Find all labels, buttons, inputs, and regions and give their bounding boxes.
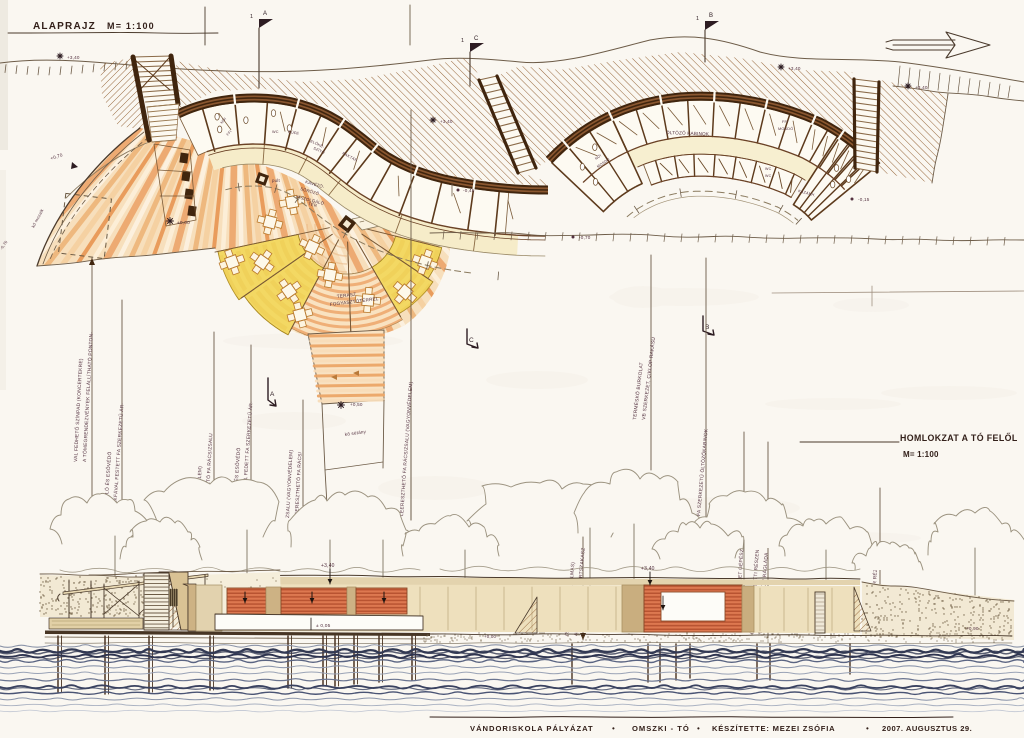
- svg-text:HOMLOKZAT A TÓ FELŐL: HOMLOKZAT A TÓ FELŐL: [900, 432, 1018, 443]
- svg-text:1: 1: [461, 38, 464, 44]
- svg-text:+3,40: +3,40: [321, 563, 335, 569]
- svg-text:VÁNDORISKOLA PÁLYÁZAT: VÁNDORISKOLA PÁLYÁZAT: [470, 724, 594, 733]
- svg-text:2007. AUGUSZTUS 29.: 2007. AUGUSZTUS 29.: [882, 724, 972, 733]
- svg-text:±0,00: ±0,00: [177, 220, 190, 226]
- svg-text:WC: WC: [272, 130, 279, 134]
- svg-text:C: C: [474, 36, 479, 42]
- svg-text:-0,15: -0,15: [858, 197, 870, 202]
- svg-text:A: A: [263, 11, 267, 17]
- svg-text:•: •: [866, 724, 869, 733]
- svg-text:-0,45: -0,45: [463, 188, 475, 193]
- svg-text:± 0,05: ± 0,05: [316, 623, 331, 629]
- svg-text:KÉSZÍTETTE: MEZEI ZSÓFIA: KÉSZÍTETTE: MEZEI ZSÓFIA: [712, 724, 835, 733]
- svg-text:FFI: FFI: [782, 120, 788, 124]
- svg-text:A: A: [270, 391, 275, 398]
- svg-text:•: •: [697, 724, 700, 733]
- svg-text:M= 1:100: M= 1:100: [903, 450, 939, 459]
- svg-text:+3,40: +3,40: [440, 119, 453, 124]
- svg-text:WC: WC: [765, 174, 772, 178]
- svg-text:B: B: [709, 13, 713, 19]
- svg-text:ALAPRAJZ: ALAPRAJZ: [33, 21, 96, 32]
- svg-text:WC: WC: [765, 167, 772, 171]
- svg-text:1: 1: [696, 16, 699, 22]
- svg-text:-0,70: -0,70: [579, 235, 591, 240]
- svg-text:pult: pult: [272, 178, 280, 183]
- svg-text:+3,40: +3,40: [641, 566, 655, 572]
- svg-text:+3,40: +3,40: [67, 55, 80, 60]
- svg-text:+3,40: +3,40: [788, 66, 801, 71]
- svg-text:•: •: [612, 724, 615, 733]
- svg-text:1: 1: [250, 14, 253, 20]
- svg-text:+0,90: +0,90: [966, 626, 979, 631]
- svg-text:+0,50: +0,50: [350, 402, 363, 407]
- svg-text:+3,40: +3,40: [915, 85, 928, 90]
- svg-text:C: C: [469, 337, 474, 344]
- svg-text:MOSDÓ: MOSDÓ: [778, 126, 793, 131]
- svg-text:OMSZKI - TÓ: OMSZKI - TÓ: [632, 724, 690, 733]
- svg-text:M= 1:100: M= 1:100: [107, 21, 155, 31]
